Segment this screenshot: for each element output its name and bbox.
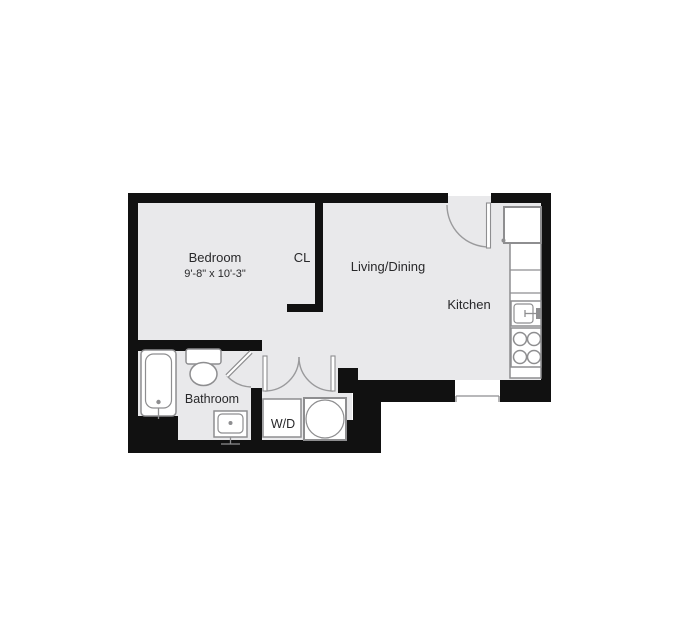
wall-laundry-block	[338, 368, 358, 393]
wall-left	[128, 193, 138, 453]
stove-icon	[511, 328, 541, 367]
washer-dryer-label: W/D	[271, 417, 295, 431]
wall-bathroom-laundry	[251, 388, 262, 453]
wall-closet-stub	[287, 304, 323, 312]
toilet-bowl	[190, 363, 217, 386]
entry-threshold	[448, 196, 491, 203]
living-dining-label: Living/Dining	[351, 259, 425, 274]
bedroom-label: Bedroom	[189, 250, 242, 265]
wall-top-left	[128, 193, 448, 203]
window-opening	[455, 380, 500, 402]
window-icon	[455, 380, 500, 402]
bathroom-sink-drain	[229, 421, 233, 425]
floor-plan-page: Bedroom 9'-8" x 10'-3" CL Living/Dining …	[0, 0, 677, 631]
bathtub-drain	[156, 400, 160, 404]
entry-door-leaf	[487, 203, 491, 248]
stove-burner	[528, 333, 541, 346]
wall-bath-corner	[128, 416, 178, 453]
stove-burner	[528, 351, 541, 364]
closet-door-leaf-left	[263, 356, 267, 391]
floor-plan: Bedroom 9'-8" x 10'-3" CL Living/Dining …	[0, 0, 677, 631]
closet-door-leaf-right	[331, 356, 335, 391]
bathroom-label: Bathroom	[185, 392, 239, 406]
bathtub-icon	[141, 350, 176, 419]
closet-label: CL	[294, 250, 311, 265]
stove-burner	[514, 351, 527, 364]
kitchen-label: Kitchen	[447, 297, 490, 312]
sink-faucet	[536, 308, 541, 319]
kitchen-sink-icon	[511, 301, 541, 326]
laundry-unit-right	[304, 398, 346, 440]
refrigerator-hinge-dot	[502, 239, 506, 243]
refrigerator-icon	[504, 207, 541, 243]
wall-bottom-right	[353, 380, 551, 402]
stove-burner	[514, 333, 527, 346]
wall-right	[541, 193, 551, 402]
wall-closet-vertical	[315, 203, 323, 312]
bedroom-dimensions: 9'-8" x 10'-3"	[184, 268, 246, 280]
